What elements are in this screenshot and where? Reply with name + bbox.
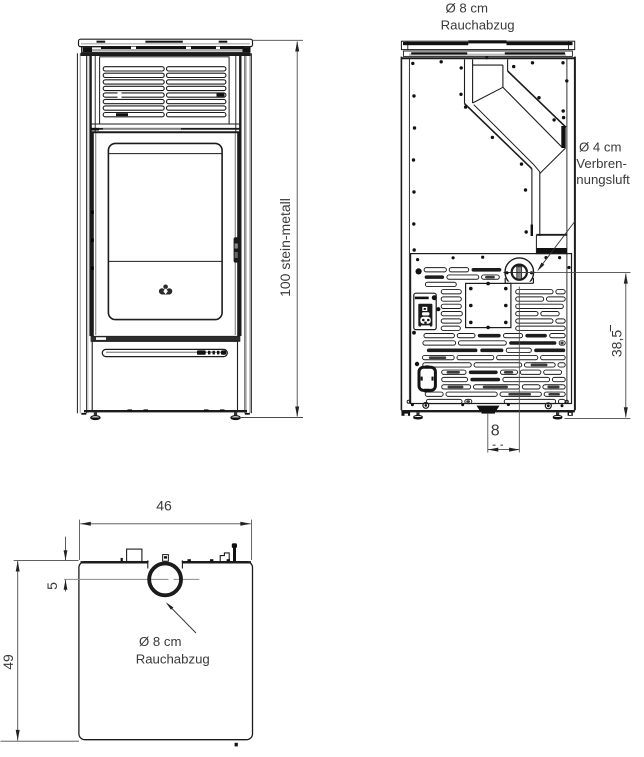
svg-text:Ø 8 cm: Ø 8 cm — [139, 634, 182, 649]
svg-text:Ø 4 cm: Ø 4 cm — [579, 140, 622, 155]
svg-text:8: 8 — [491, 423, 500, 440]
svg-text:Verbren-: Verbren- — [576, 156, 627, 171]
svg-text:Rauchabzug: Rauchabzug — [441, 18, 515, 33]
svg-text:100 stein-metall: 100 stein-metall — [277, 198, 293, 297]
svg-text:49: 49 — [0, 654, 16, 670]
svg-text:Ø 8 cm: Ø 8 cm — [446, 1, 489, 16]
svg-text:nungsluft: nungsluft — [576, 172, 630, 187]
svg-text:46: 46 — [156, 498, 172, 514]
svg-text:Rauchabzug: Rauchabzug — [136, 652, 210, 667]
svg-text:5: 5 — [44, 582, 60, 590]
svg-text:38,5: 38,5 — [609, 330, 625, 357]
